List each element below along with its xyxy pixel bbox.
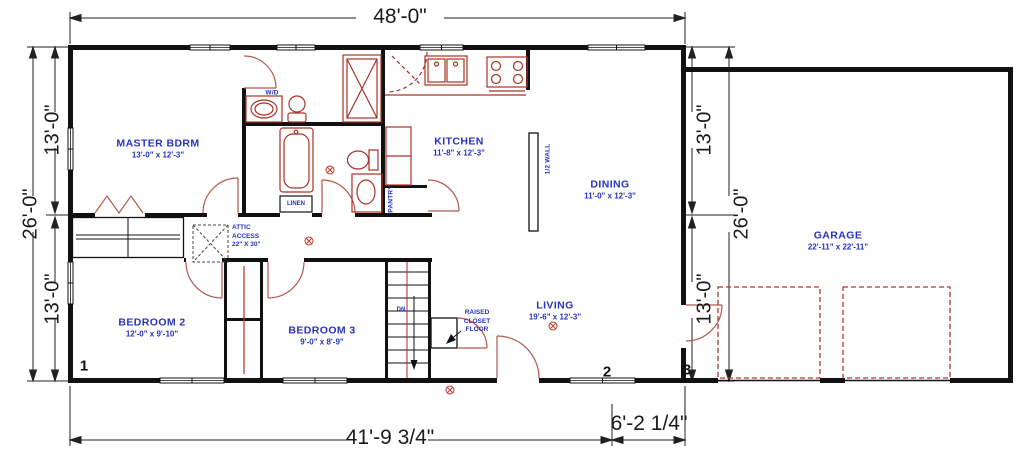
marker-2: 2: [603, 364, 611, 381]
room-size: 9'-0" x 8'-9": [288, 338, 355, 348]
room-label-living: LIVING 19'-6" x 12'-3": [529, 300, 581, 323]
room-name: BEDROOM 3: [288, 325, 355, 338]
dim-bottom-main: 41'-9 3/4": [346, 426, 435, 450]
room-size: 22'-11" x 22'-11": [808, 243, 868, 253]
marker-1: 1: [80, 358, 88, 375]
bath-fixtures: [246, 55, 382, 212]
dim-right-lower: 13'-0": [694, 274, 717, 325]
dim-left-lower: 13'-0": [42, 274, 65, 325]
exterior-walls: [68, 45, 1013, 383]
raised-closet: [431, 318, 457, 348]
garage-bays: [718, 287, 950, 378]
label-linen: LINEN: [287, 201, 305, 207]
kitchen-fixtures: [385, 52, 527, 185]
attic-access-hatch: [193, 225, 228, 262]
floor-plan: 48'-0" 26'-0" 13'-0" 13'-0" 13'-0" 13'-0…: [0, 0, 1021, 463]
dim-overall-width: 48'-0": [373, 5, 427, 29]
raised-closet-arrow: [446, 331, 461, 344]
room-label-dining: DINING 11'-0" x 12'-3": [584, 179, 636, 202]
stairs: [388, 262, 428, 378]
raised-line2: CLOSET: [464, 318, 490, 327]
room-size: 12'-0" x 9'-10": [118, 330, 185, 340]
room-size: 11'-0" x 12'-3": [584, 192, 636, 202]
room-label-master: MASTER BDRM 13'-0" x 12'-3": [116, 138, 199, 161]
room-name: MASTER BDRM: [116, 138, 199, 151]
label-half-wall: 1/2 WALL: [545, 144, 552, 175]
label-pantry: PANTRY: [388, 185, 395, 212]
label-down: DN: [397, 307, 406, 313]
marker-3: 3: [683, 362, 691, 379]
room-size: 11'-8" x 12'-3": [433, 149, 485, 159]
attic-line2: ACCESS: [232, 233, 261, 242]
room-name: BEDROOM 2: [118, 317, 185, 330]
label-washer-dryer: W/D: [265, 90, 278, 97]
label-raised-closet: RAISED CLOSET FLOOR: [464, 309, 490, 335]
dim-left-upper: 13'-0": [42, 105, 65, 156]
room-label-garage: GARAGE 22'-11" x 22'-11": [808, 230, 868, 253]
room-name: DINING: [584, 179, 636, 192]
half-wall: [529, 133, 538, 231]
room-size: 13'-0" x 12'-3": [116, 151, 199, 161]
attic-line1: ATTIC: [232, 224, 261, 233]
room-size: 19'-6" x 12'-3": [529, 313, 581, 323]
room-label-bedroom2: BEDROOM 2 12'-0" x 9'-10": [118, 317, 185, 340]
dim-right-upper: 13'-0": [694, 105, 717, 156]
room-name: KITCHEN: [433, 136, 485, 149]
raised-line1: RAISED: [464, 309, 490, 318]
label-attic-access: ATTIC ACCESS 22" X 30": [232, 224, 261, 250]
dim-right-total: 26'-0": [731, 189, 754, 240]
room-label-kitchen: KITCHEN 11'-8" x 12'-3": [433, 136, 485, 159]
room-name: GARAGE: [808, 230, 868, 243]
raised-line3: FLOOR: [464, 326, 490, 335]
dim-bottom-offset: 6'-2 1/4": [611, 412, 688, 436]
attic-line3: 22" X 30": [232, 241, 261, 250]
dim-left-total: 26'-0": [20, 189, 43, 240]
hall-closet: [73, 218, 184, 258]
room-name: LIVING: [529, 300, 581, 313]
room-label-bedroom3: BEDROOM 3 9'-0" x 8'-9": [288, 325, 355, 348]
